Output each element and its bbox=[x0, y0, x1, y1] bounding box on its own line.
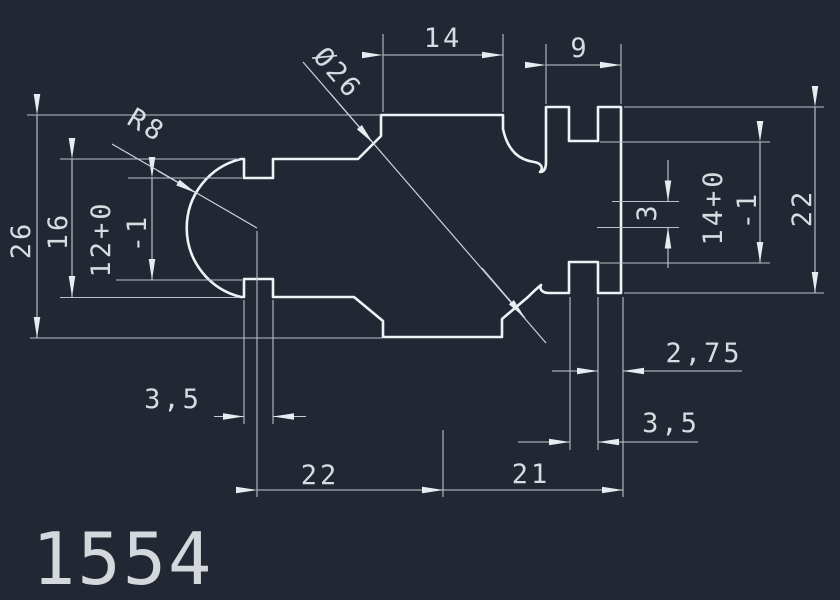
radius-note: R8 bbox=[122, 103, 171, 149]
dim-left-section-height: 16 bbox=[43, 212, 74, 251]
dim-right-edge-offset: 2,75 bbox=[665, 338, 742, 369]
dim-left-tolerance-line2: -1 bbox=[122, 214, 153, 253]
dim-left-slot-width: 3,5 bbox=[144, 384, 202, 415]
radius-leader-arrow bbox=[158, 171, 196, 193]
dim-top-width: 14 bbox=[424, 23, 463, 54]
leader-lines bbox=[112, 62, 546, 343]
technical-drawing: 14 9 22 21 3,5 2,75 3,5 26 16 12+0 -1 3 … bbox=[0, 0, 840, 600]
dimension-labels: 14 9 22 21 3,5 2,75 3,5 26 16 12+0 -1 3 … bbox=[6, 23, 818, 491]
dim-bottom-right-span: 21 bbox=[512, 459, 551, 490]
dim-top-right-width: 9 bbox=[570, 33, 589, 64]
diameter-arrow-lower bbox=[482, 268, 525, 318]
part-outline bbox=[187, 107, 621, 337]
dim-left-overall: 26 bbox=[6, 221, 37, 260]
cad-drawing-canvas: 14 9 22 21 3,5 2,75 3,5 26 16 12+0 -1 3 … bbox=[0, 0, 840, 600]
dim-right-slot-width: 3,5 bbox=[642, 408, 700, 439]
diameter-arrow-upper bbox=[330, 93, 373, 143]
part-number: 1554 bbox=[32, 517, 213, 600]
diameter-note: Ø26 bbox=[307, 41, 368, 105]
dim-right-center-offset: 3 bbox=[632, 202, 663, 221]
extension-lines bbox=[27, 34, 824, 497]
dim-left-tolerance-line1: 12+0 bbox=[86, 200, 117, 277]
profile-path bbox=[187, 107, 621, 337]
dim-bottom-left-span: 22 bbox=[301, 460, 340, 491]
dim-right-overall: 22 bbox=[787, 189, 818, 228]
dim-right-tolerance-line2: -1 bbox=[732, 191, 763, 230]
outside-arrow-tails bbox=[214, 160, 742, 442]
dim-right-tolerance-line1: 14+0 bbox=[698, 168, 729, 245]
